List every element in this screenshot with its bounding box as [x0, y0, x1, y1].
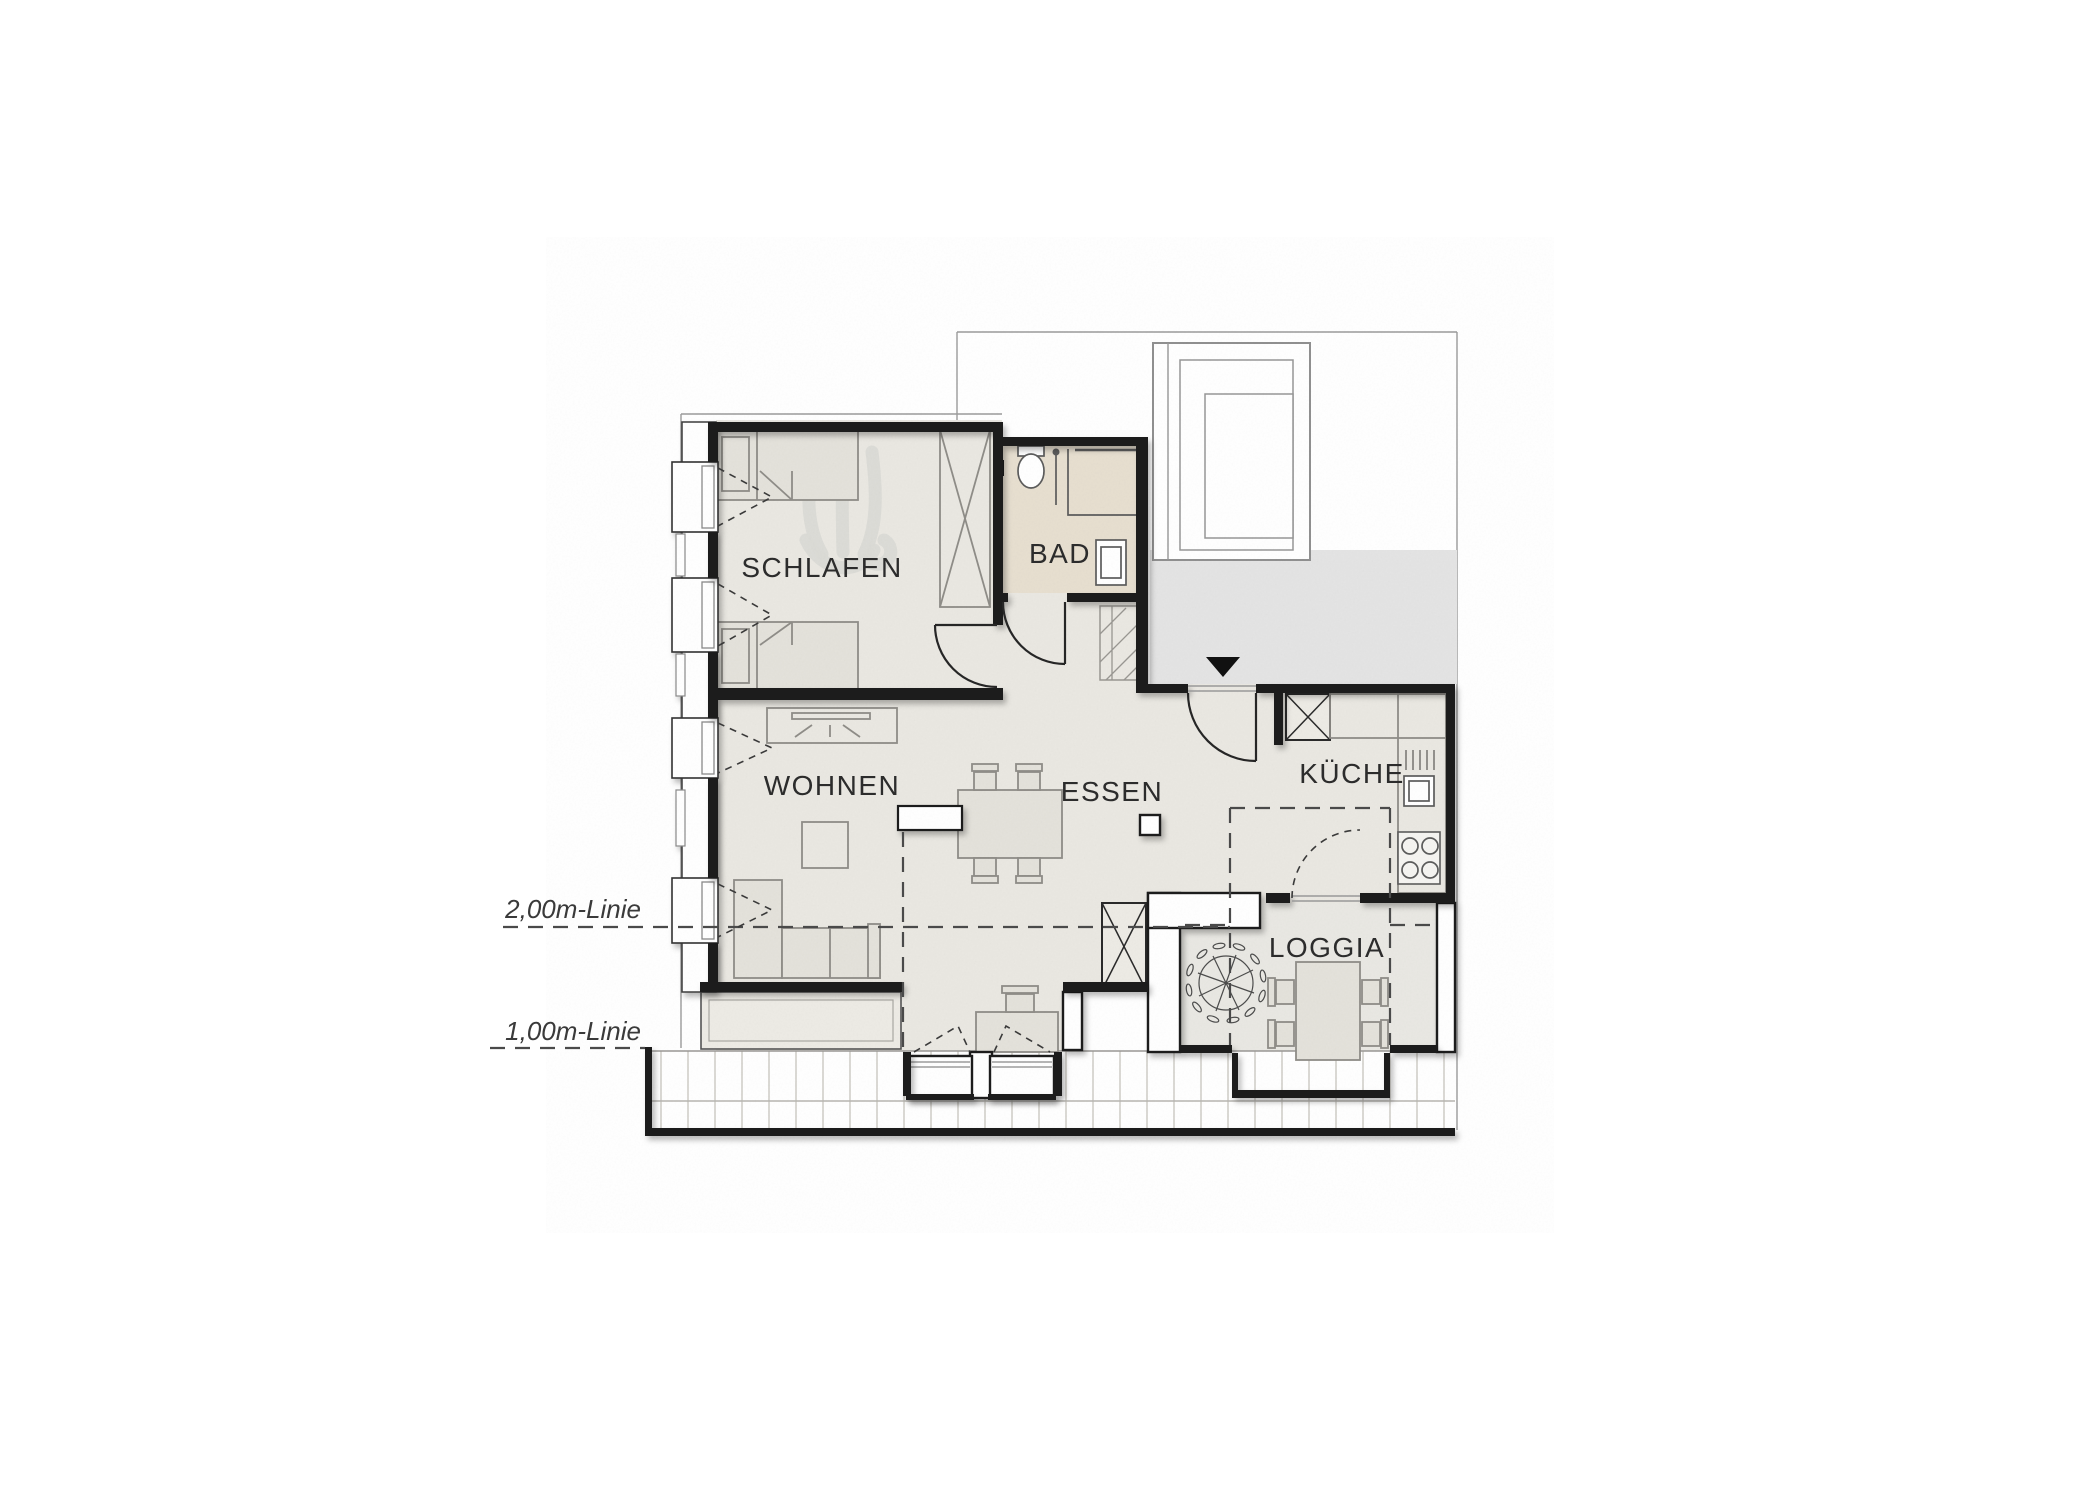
height-line-label-1m: 1,00m-Linie [505, 1016, 641, 1046]
paper-texture [630, 320, 1470, 1150]
height-line-label-2m: 2,00m-Linie [504, 894, 641, 924]
floor-plan-page: SCHLAFEN BAD WOHNEN ESSEN KÜCHE LOGGIA 2… [0, 0, 2100, 1485]
floor-plan: SCHLAFEN BAD WOHNEN ESSEN KÜCHE LOGGIA 2… [0, 0, 2100, 1485]
